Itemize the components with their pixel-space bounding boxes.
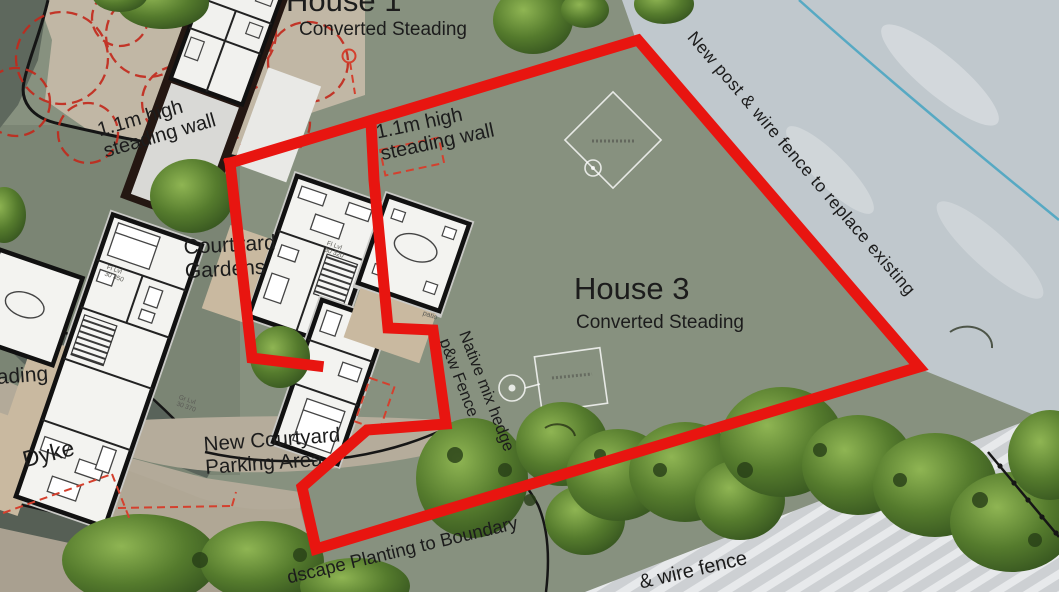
courtyard-gardens-label: Courtyard Gardens: [183, 231, 278, 283]
house1-title: House 1: [286, 0, 401, 19]
steading-partial-label: ading: [0, 362, 49, 389]
house1-subtitle: Converted Steading: [299, 19, 467, 40]
house3-subtitle: Converted Steading: [576, 312, 744, 333]
site-plan: House 1 Converted Steading 1.1m high ste…: [0, 0, 1059, 592]
parking-area-label: New Courtyard Parking Area: [203, 424, 343, 479]
house3-title: House 3: [574, 272, 689, 307]
